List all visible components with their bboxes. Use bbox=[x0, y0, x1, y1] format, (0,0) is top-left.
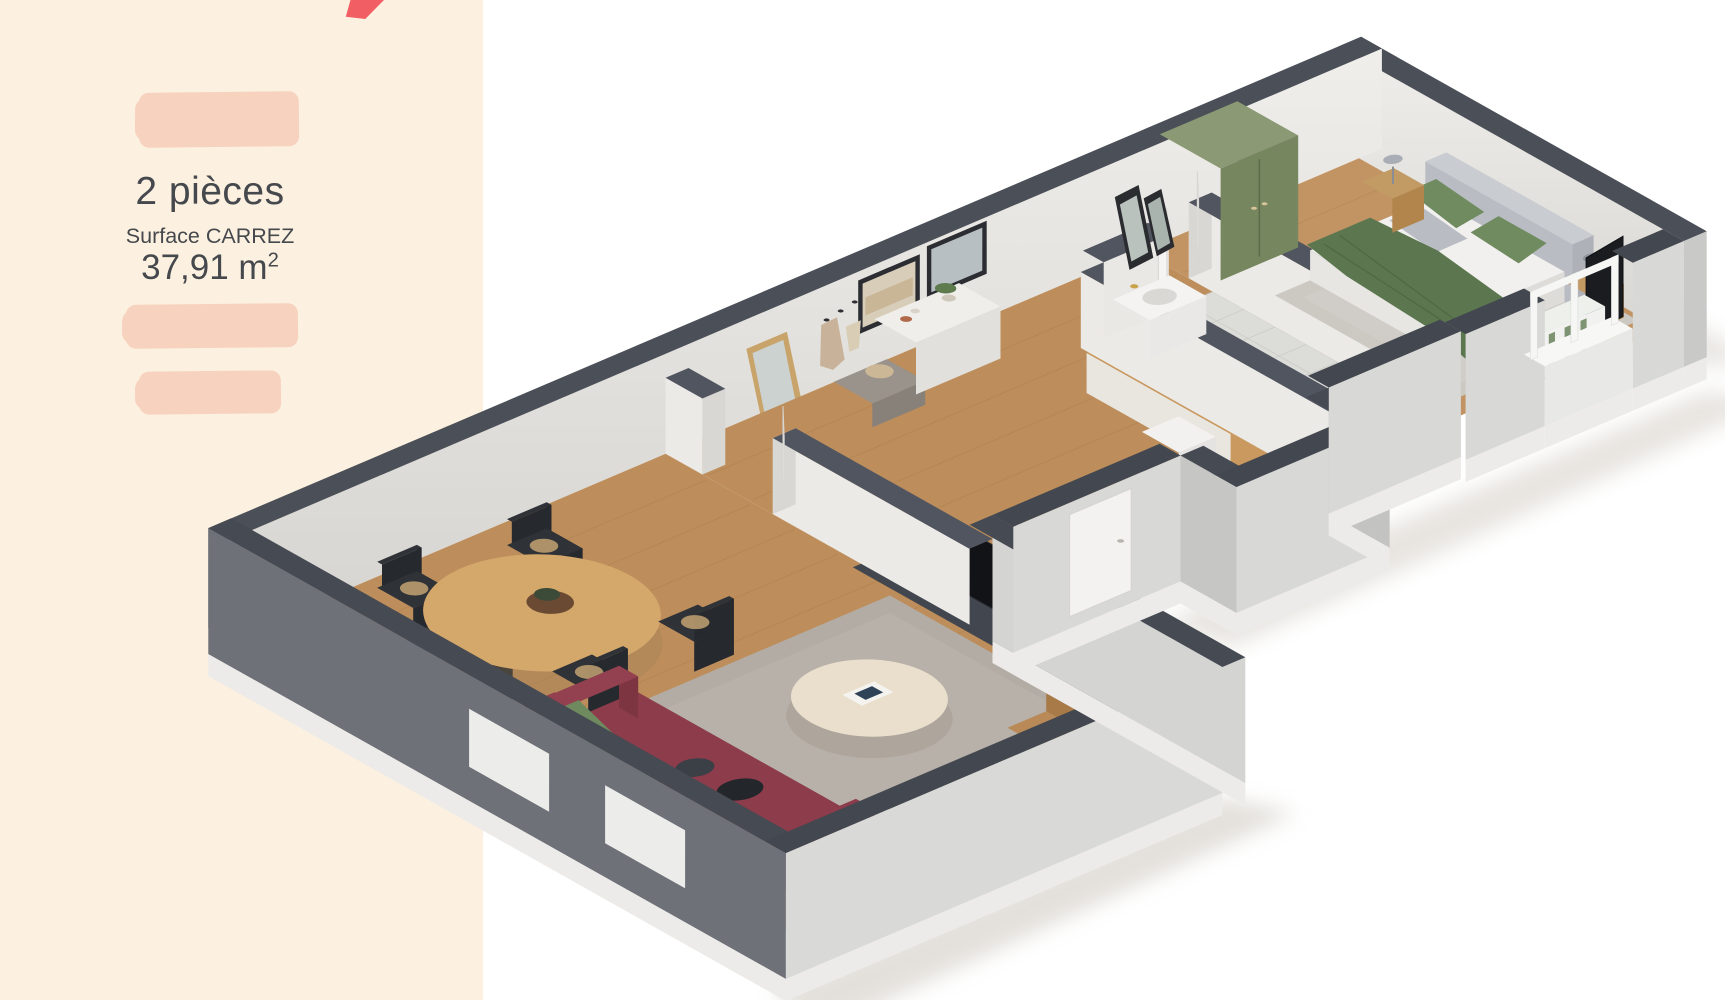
door-living bbox=[783, 406, 784, 509]
window-post-2 bbox=[1571, 272, 1578, 343]
door-bedroom bbox=[1197, 171, 1198, 273]
wall-northeast-south bbox=[1684, 231, 1707, 367]
partition-living-hall-a-south bbox=[702, 389, 725, 475]
wall-bedroom-front-b-south bbox=[1633, 241, 1684, 389]
floor-plan-3d-render bbox=[0, 0, 1725, 1000]
window-post-3 bbox=[1611, 255, 1618, 326]
window-post-1 bbox=[1530, 289, 1537, 360]
